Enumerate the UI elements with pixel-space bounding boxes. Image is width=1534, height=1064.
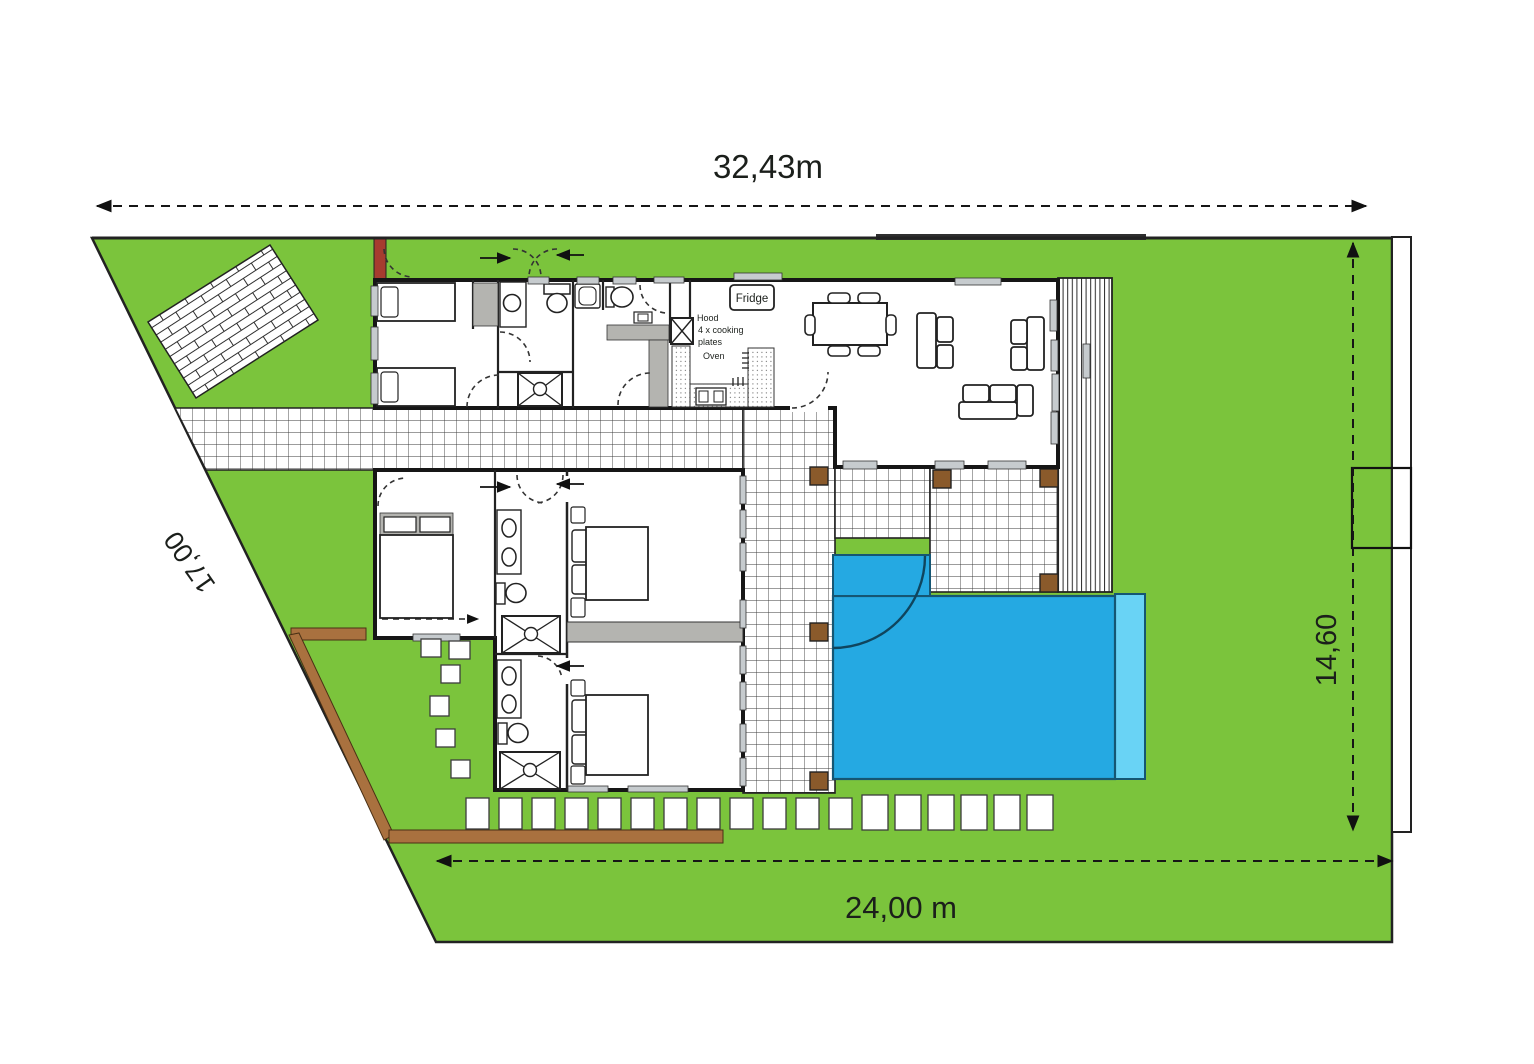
dimension-label-right: 14,60 [1311, 614, 1343, 687]
stepping-stone [763, 798, 786, 829]
wood-deck [1058, 278, 1112, 592]
sofa-cushion [963, 385, 989, 402]
glass-door-slab [740, 600, 746, 628]
stepping-stone [499, 798, 522, 829]
toilet-bowl [547, 294, 567, 313]
stepping-stone [664, 798, 687, 829]
sink [502, 667, 516, 685]
closet [473, 283, 498, 326]
sink [504, 295, 521, 312]
oven-label: Oven [703, 351, 725, 361]
pillow [381, 287, 398, 317]
chair [858, 293, 880, 303]
cooking-label: 4 x cooking [698, 325, 744, 335]
glass-door-slab [740, 758, 746, 786]
armchair [1017, 385, 1033, 416]
pillow [381, 372, 398, 402]
stepping-stone [631, 798, 654, 829]
stepping-stone [895, 795, 921, 830]
chair [886, 315, 896, 335]
cushion [571, 680, 585, 696]
sofa [1027, 317, 1044, 370]
sink [502, 519, 516, 537]
glass-door-slab [740, 724, 746, 752]
sofa [917, 313, 936, 368]
stepping-stone [436, 729, 455, 747]
fridge-label: Fridge [736, 293, 769, 305]
glass-door-slab [740, 543, 746, 571]
plates-label: plates [698, 337, 723, 347]
stepping-stone [532, 798, 555, 829]
stepping-stone [598, 798, 621, 829]
shower-drain [525, 628, 538, 641]
sofa-cushion [1011, 320, 1027, 344]
stepping-stone [796, 798, 819, 829]
sink [502, 548, 516, 566]
glass-door-slab [740, 476, 746, 504]
deck-slab [1083, 344, 1090, 378]
sofa [959, 402, 1017, 419]
chair [828, 293, 850, 303]
toilet-tank [544, 284, 570, 294]
dimension-label-left: 17,00 [158, 526, 221, 599]
floor-drain-inner [638, 314, 648, 321]
floor-plan-drawing: Fridge Hood 4 x cooking plates Oven [0, 0, 1534, 1064]
kitchen-island [748, 348, 774, 407]
dimension-label-bottom: 24,00 m [845, 890, 957, 925]
stepping-stone [697, 798, 720, 829]
pillow [420, 517, 450, 532]
interior-gray-wall [649, 340, 668, 407]
pool-spa [833, 555, 930, 596]
stepping-stone [430, 696, 449, 716]
sink [502, 695, 516, 713]
stepping-stone [441, 665, 460, 683]
cushion [571, 507, 585, 523]
right-fence [1392, 237, 1411, 832]
stepping-stone [961, 795, 987, 830]
shower-drain [524, 764, 537, 777]
glass-door-slab [740, 682, 746, 710]
entrance-gate-post [374, 239, 386, 280]
stepping-stone [862, 795, 888, 830]
stepping-stone [829, 798, 852, 829]
toilet-tank [496, 583, 505, 604]
toilet-bowl [611, 287, 633, 307]
sofa-cushion [937, 345, 953, 368]
double-bed [586, 527, 648, 600]
stepping-stone [421, 639, 441, 657]
stepping-stone [565, 798, 588, 829]
counter [672, 346, 690, 407]
cushion [571, 766, 585, 784]
door-opening [564, 658, 570, 684]
cushion [571, 598, 585, 617]
glass-door-slab [740, 646, 746, 674]
chair [828, 346, 850, 356]
hood-label: Hood [697, 313, 719, 323]
basin [579, 287, 596, 305]
stepping-stone [449, 641, 470, 659]
sofa-cushion [937, 317, 953, 342]
site-plan-canvas: Fridge Hood 4 x cooking plates Oven [0, 0, 1534, 1064]
stepping-stone [466, 798, 489, 829]
sofa-cushion [990, 385, 1016, 402]
double-bed [380, 535, 453, 618]
glass-door-slab [740, 510, 746, 538]
toilet-tank [498, 723, 507, 744]
stepping-stone [1027, 795, 1053, 830]
double-bed [586, 695, 648, 775]
toilet-bowl [506, 584, 526, 603]
bedroom-wing-windows [568, 786, 688, 792]
dining-table [813, 303, 887, 345]
sofa-cushion [1011, 347, 1027, 370]
bedroom-3 [571, 680, 648, 784]
stepping-stone [928, 795, 954, 830]
pool-ledge [1115, 594, 1145, 779]
stepping-stone [451, 760, 470, 778]
shower-drain [534, 383, 547, 396]
toilet-bowl [508, 724, 528, 743]
pool-main [833, 596, 1115, 779]
pillow [384, 517, 416, 532]
door-opening [564, 476, 570, 502]
dimension-label-top: 32,43m [713, 148, 823, 185]
chair [858, 346, 880, 356]
stepping-stone [994, 795, 1020, 830]
interior-gray-wall [607, 325, 669, 340]
bedroom-divider-wall [567, 622, 743, 642]
stepping-stone [730, 798, 753, 829]
chair [805, 315, 815, 335]
